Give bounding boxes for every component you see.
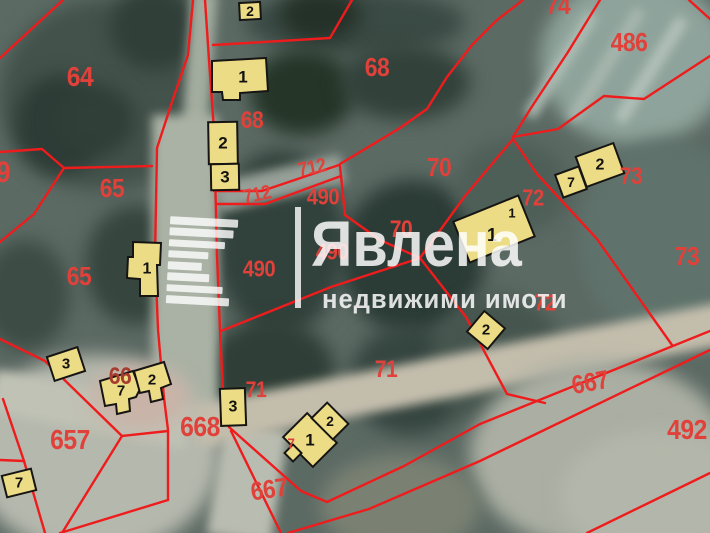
parcel-label-68: 68 xyxy=(365,54,390,80)
building-marker-3[interactable]: 3 xyxy=(220,388,246,426)
svg-text:1: 1 xyxy=(143,261,152,278)
parcel-label-490: 490 xyxy=(316,241,348,264)
parcel-label-712: 712 xyxy=(241,182,273,207)
parcel-label-65: 65 xyxy=(100,175,125,201)
parcel-label-68: 68 xyxy=(241,109,264,133)
parcel-label-9: 9 xyxy=(0,158,10,188)
parcel-label-72: 72 xyxy=(522,187,544,210)
building-marker-1[interactable]: 1 xyxy=(508,206,515,221)
parcel-label-712: 712 xyxy=(296,155,328,180)
parcel-label-71: 71 xyxy=(375,358,398,382)
svg-text:7: 7 xyxy=(15,475,23,492)
parcel-label-70: 70 xyxy=(427,154,452,180)
parcel-label-65: 65 xyxy=(67,263,92,289)
svg-text:2: 2 xyxy=(482,322,490,339)
parcel-label-490: 490 xyxy=(307,186,339,209)
svg-text:3: 3 xyxy=(229,399,238,416)
building-marker-1[interactable]: 1 xyxy=(212,58,268,100)
parcel-label-71: 71 xyxy=(246,379,267,401)
parcel-label-74: 74 xyxy=(546,0,571,18)
building-marker-3[interactable]: 3 xyxy=(47,347,85,381)
map-canvas[interactable]: 21231721123723127 6496565686874486707071… xyxy=(0,0,710,533)
building-marker-2[interactable]: 2 xyxy=(239,2,261,20)
building-marker-2[interactable]: 2 xyxy=(208,122,238,164)
parcel-label-492: 492 xyxy=(667,416,707,444)
building-marker-7[interactable]: 7 xyxy=(2,469,36,498)
building-marker-2[interactable]: 2 xyxy=(467,311,505,349)
building-marker-1[interactable]: 1 xyxy=(127,242,161,296)
building-marker-2[interactable]: 2 xyxy=(134,362,171,402)
parcel-label-7: 7 xyxy=(288,437,295,452)
parcel-label-667: 667 xyxy=(249,474,289,505)
svg-text:2: 2 xyxy=(148,372,156,389)
svg-text:1: 1 xyxy=(238,68,247,87)
svg-text:1: 1 xyxy=(305,431,314,450)
parcel-label-66: 66 xyxy=(109,365,132,389)
parcel-label-668: 668 xyxy=(180,413,220,441)
svg-text:3: 3 xyxy=(220,168,229,187)
building-marker-3[interactable]: 3 xyxy=(211,164,239,190)
parcel-label-486: 486 xyxy=(611,29,648,55)
svg-text:3: 3 xyxy=(62,356,70,373)
building-markers-layer: 21231721123723127 xyxy=(0,0,710,533)
parcel-label-657: 657 xyxy=(50,426,90,454)
svg-text:2: 2 xyxy=(218,134,227,153)
svg-text:7: 7 xyxy=(567,174,575,190)
parcel-label-667: 667 xyxy=(570,366,611,398)
svg-text:2: 2 xyxy=(596,157,605,174)
svg-text:1: 1 xyxy=(508,206,515,221)
svg-text:2: 2 xyxy=(246,3,254,19)
parcel-label-64: 64 xyxy=(67,63,94,91)
svg-text:2: 2 xyxy=(326,413,334,429)
parcel-label-73: 73 xyxy=(620,165,643,189)
parcel-label-72: 72 xyxy=(534,292,556,315)
parcel-label-490: 490 xyxy=(243,258,275,281)
parcel-label-73: 73 xyxy=(675,243,700,269)
parcel-label-70: 70 xyxy=(390,218,413,242)
svg-text:1: 1 xyxy=(487,225,497,245)
